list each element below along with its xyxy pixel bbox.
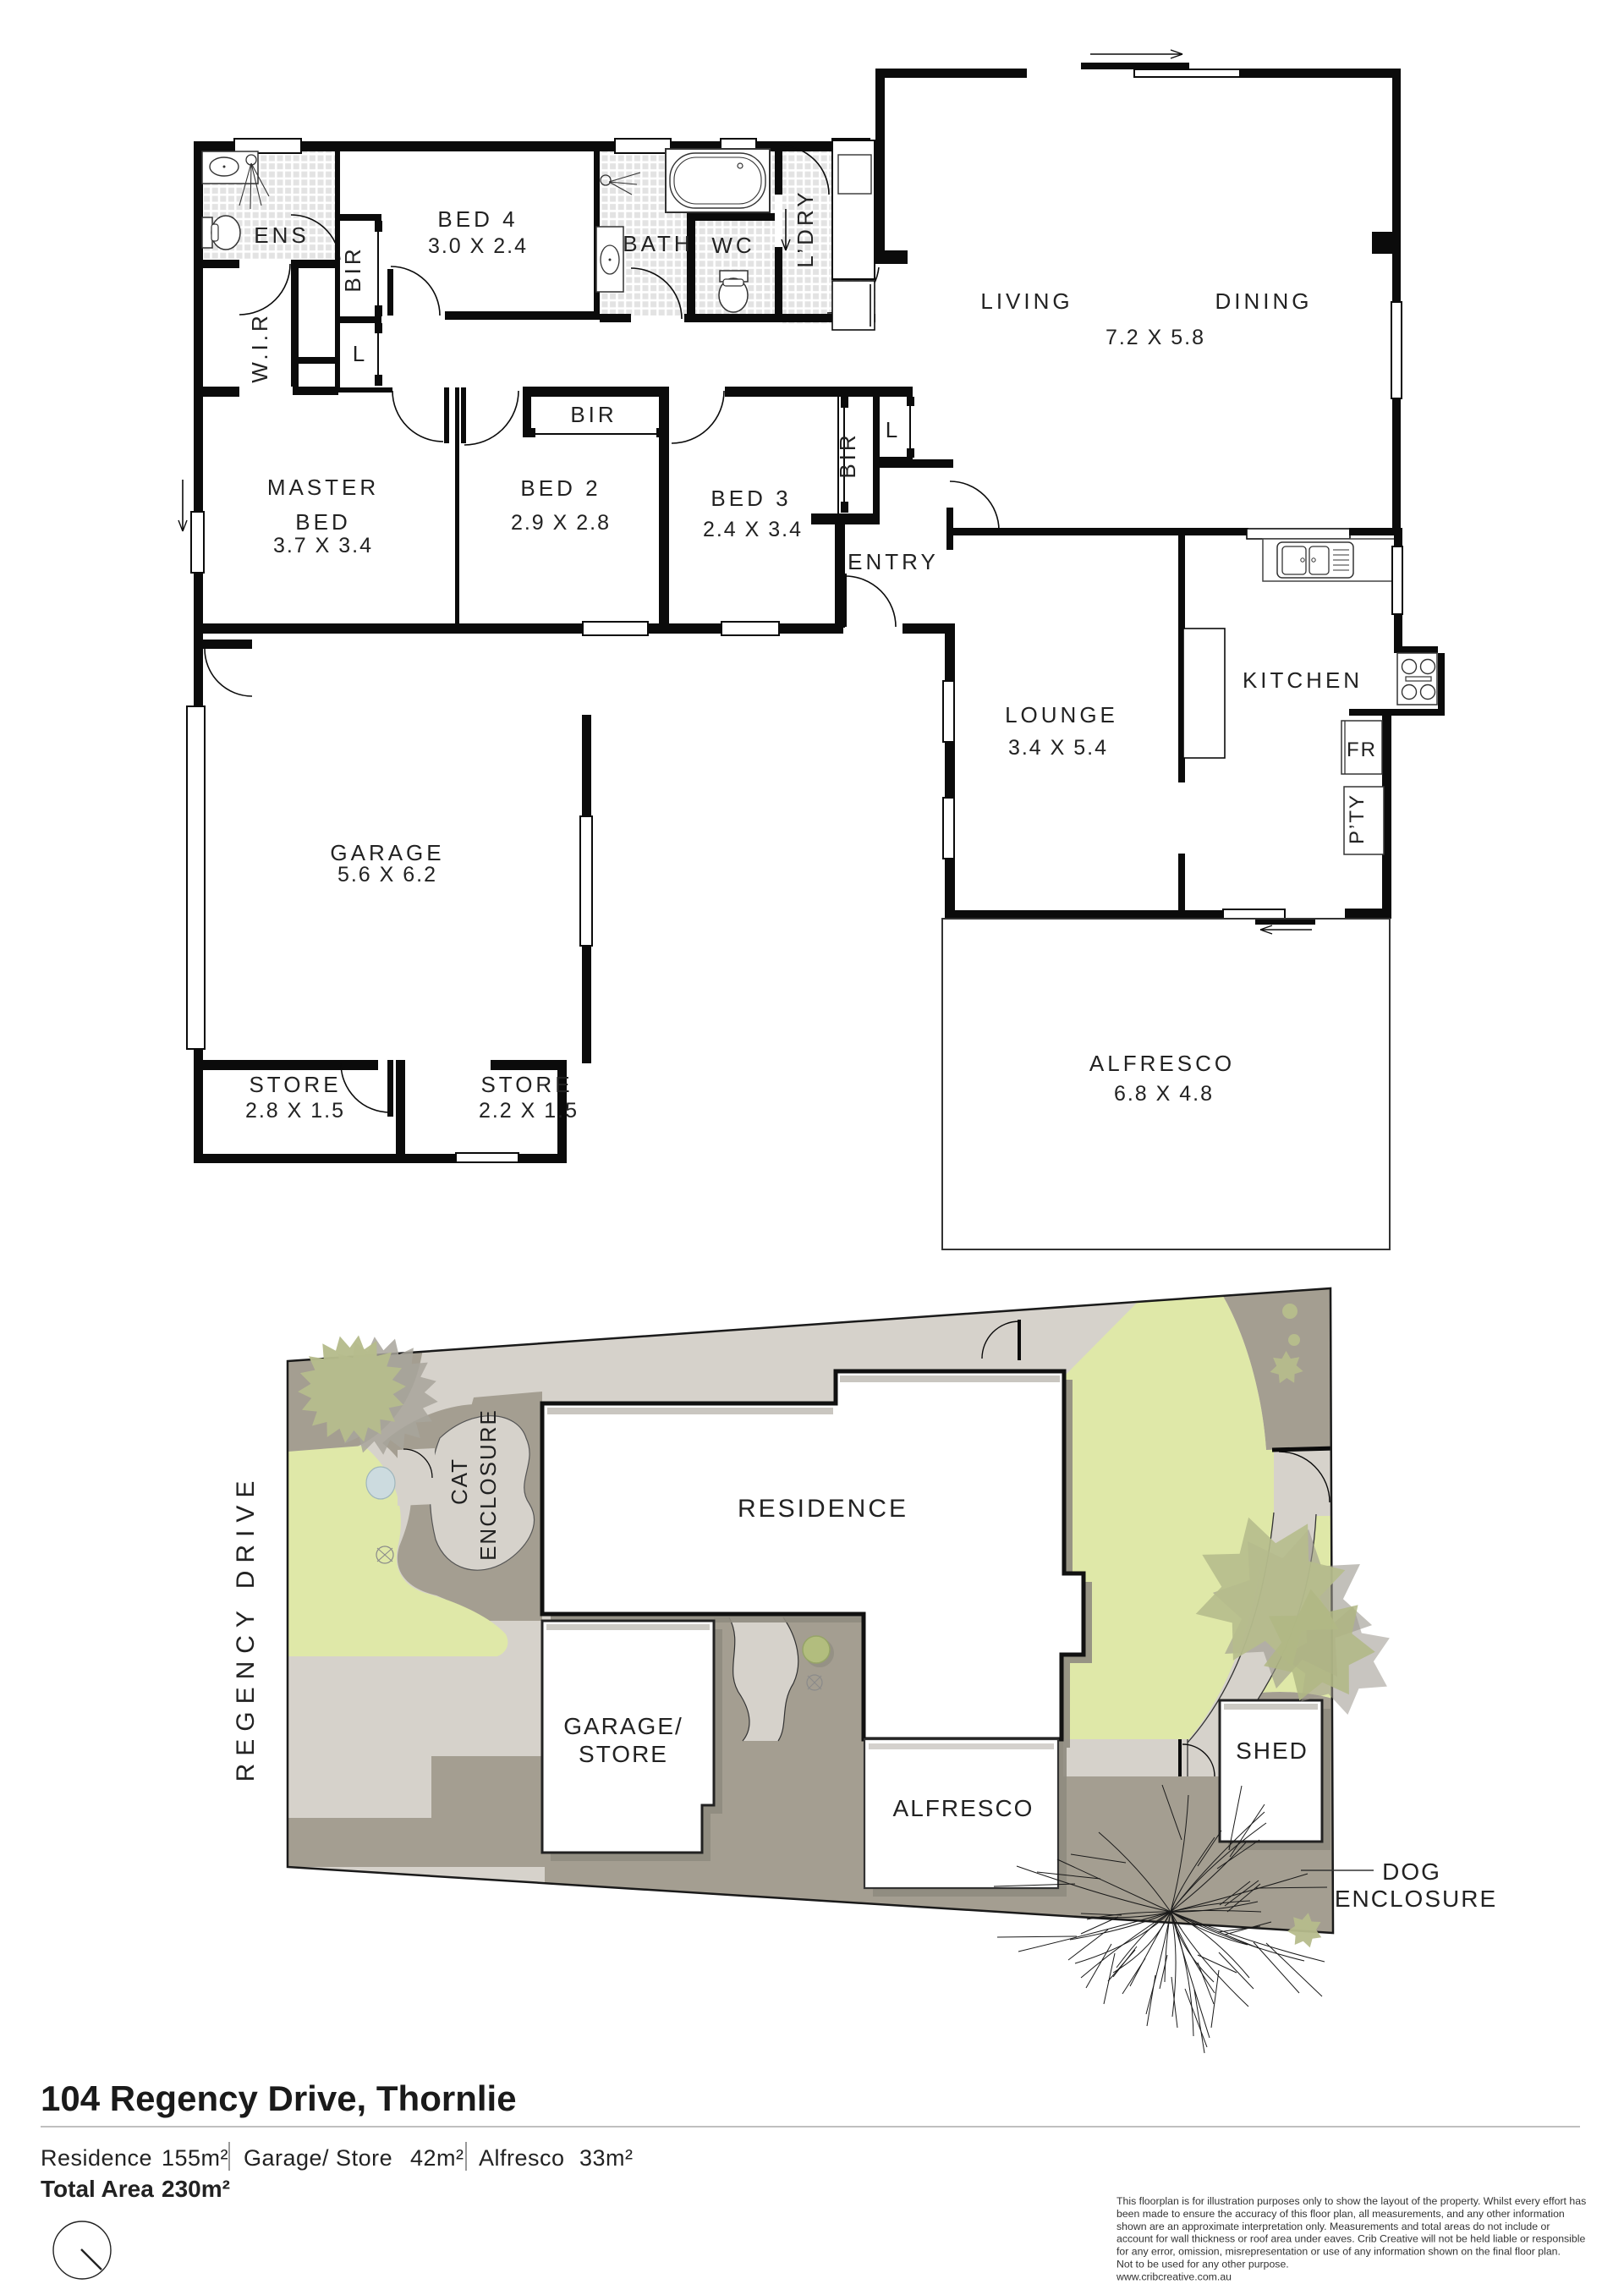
svg-text:GARAGE/: GARAGE/ [563,1713,683,1739]
svg-text:CAT: CAT [447,1458,472,1505]
svg-text:DOG: DOG [1382,1859,1441,1885]
svg-text:This floorplan is for illustra: This floorplan is for illustration purpo… [1116,2195,1586,2207]
svg-text:STORE: STORE [480,1072,573,1097]
svg-text:ENS: ENS [254,222,309,248]
svg-text:ENCLOSURE: ENCLOSURE [1335,1886,1497,1912]
svg-text:www.cribcreative.com.au: www.cribcreative.com.au [1116,2270,1232,2282]
svg-text:GARAGE: GARAGE [330,840,444,865]
svg-text:SHED: SHED [1236,1738,1309,1764]
svg-text:KITCHEN: KITCHEN [1243,667,1363,693]
svg-text:ALFRESCO: ALFRESCO [893,1795,1034,1821]
svg-text:account for wall thickness or: account for wall thickness or roof area … [1116,2233,1585,2245]
svg-text:33m²: 33m² [579,2145,634,2171]
svg-text:Garage/ Store: Garage/ Store [244,2145,392,2171]
svg-text:3.0 X 2.4: 3.0 X 2.4 [428,234,528,258]
svg-text:RESIDENCE: RESIDENCE [738,1495,908,1523]
svg-text:ENTRY: ENTRY [848,549,939,574]
svg-text:shown are an approximate inter: shown are an approximate interpretation … [1116,2221,1550,2232]
svg-text:2.8 X 1.5: 2.8 X 1.5 [245,1099,345,1123]
svg-text:BED 4: BED 4 [437,206,518,232]
svg-text:MASTER: MASTER [267,475,379,500]
svg-text:WC: WC [711,233,754,258]
svg-text:been made to ensure the accura: been made to ensure the accuracy of this… [1116,2208,1565,2220]
svg-text:Not to be used for any other p: Not to be used for any other purpose. [1116,2259,1289,2270]
svg-text:BIR: BIR [570,402,617,427]
svg-text:BED 3: BED 3 [710,486,791,511]
svg-text:for any error, omission, misre: for any error, omission, misrepresentati… [1116,2246,1561,2258]
svg-text:Residence: Residence [41,2145,152,2171]
svg-text:REGENCY DRIVE: REGENCY DRIVE [232,1474,260,1782]
svg-text:L: L [886,417,901,442]
svg-text:STORE: STORE [579,1741,668,1767]
svg-text:230m²: 230m² [162,2176,230,2202]
svg-text:5.6 X 6.2: 5.6 X 6.2 [337,863,437,887]
svg-text:2.4 X 3.4: 2.4 X 3.4 [703,518,803,541]
svg-text:STORE: STORE [249,1072,341,1097]
svg-text:L: L [353,341,368,366]
svg-text:BED: BED [295,509,350,535]
svg-text:104 Regency Drive, Thornlie: 104 Regency Drive, Thornlie [41,2078,517,2118]
svg-text:BATH: BATH [623,231,693,256]
svg-text:155m²: 155m² [162,2145,228,2171]
svg-text:2.9 X 2.8: 2.9 X 2.8 [511,511,611,535]
svg-text:W.I.R: W.I.R [247,312,272,383]
svg-text:Total Area: Total Area [41,2176,154,2202]
svg-text:BIR: BIR [835,431,860,478]
svg-text:6.8 X 4.8: 6.8 X 4.8 [1114,1082,1214,1106]
svg-text:DINING: DINING [1215,288,1313,314]
svg-text:L’DRY: L’DRY [793,189,818,267]
svg-text:Alfresco: Alfresco [479,2145,565,2171]
svg-text:42m²: 42m² [410,2145,464,2171]
svg-text:3.4 X 5.4: 3.4 X 5.4 [1008,736,1108,760]
svg-text:FR: FR [1347,738,1377,761]
svg-text:LOUNGE: LOUNGE [1005,702,1118,727]
svg-text:BED 2: BED 2 [520,475,601,501]
svg-text:ENCLOSURE: ENCLOSURE [475,1408,501,1561]
svg-text:P’TY: P’TY [1346,793,1369,844]
svg-text:3.7 X 3.4: 3.7 X 3.4 [273,534,373,557]
svg-text:BIR: BIR [340,245,365,292]
svg-text:ALFRESCO: ALFRESCO [1089,1051,1235,1076]
svg-text:2.2 X 1.5: 2.2 X 1.5 [479,1099,579,1123]
svg-text:LIVING: LIVING [980,288,1073,314]
svg-text:7.2 X 5.8: 7.2 X 5.8 [1106,326,1205,349]
